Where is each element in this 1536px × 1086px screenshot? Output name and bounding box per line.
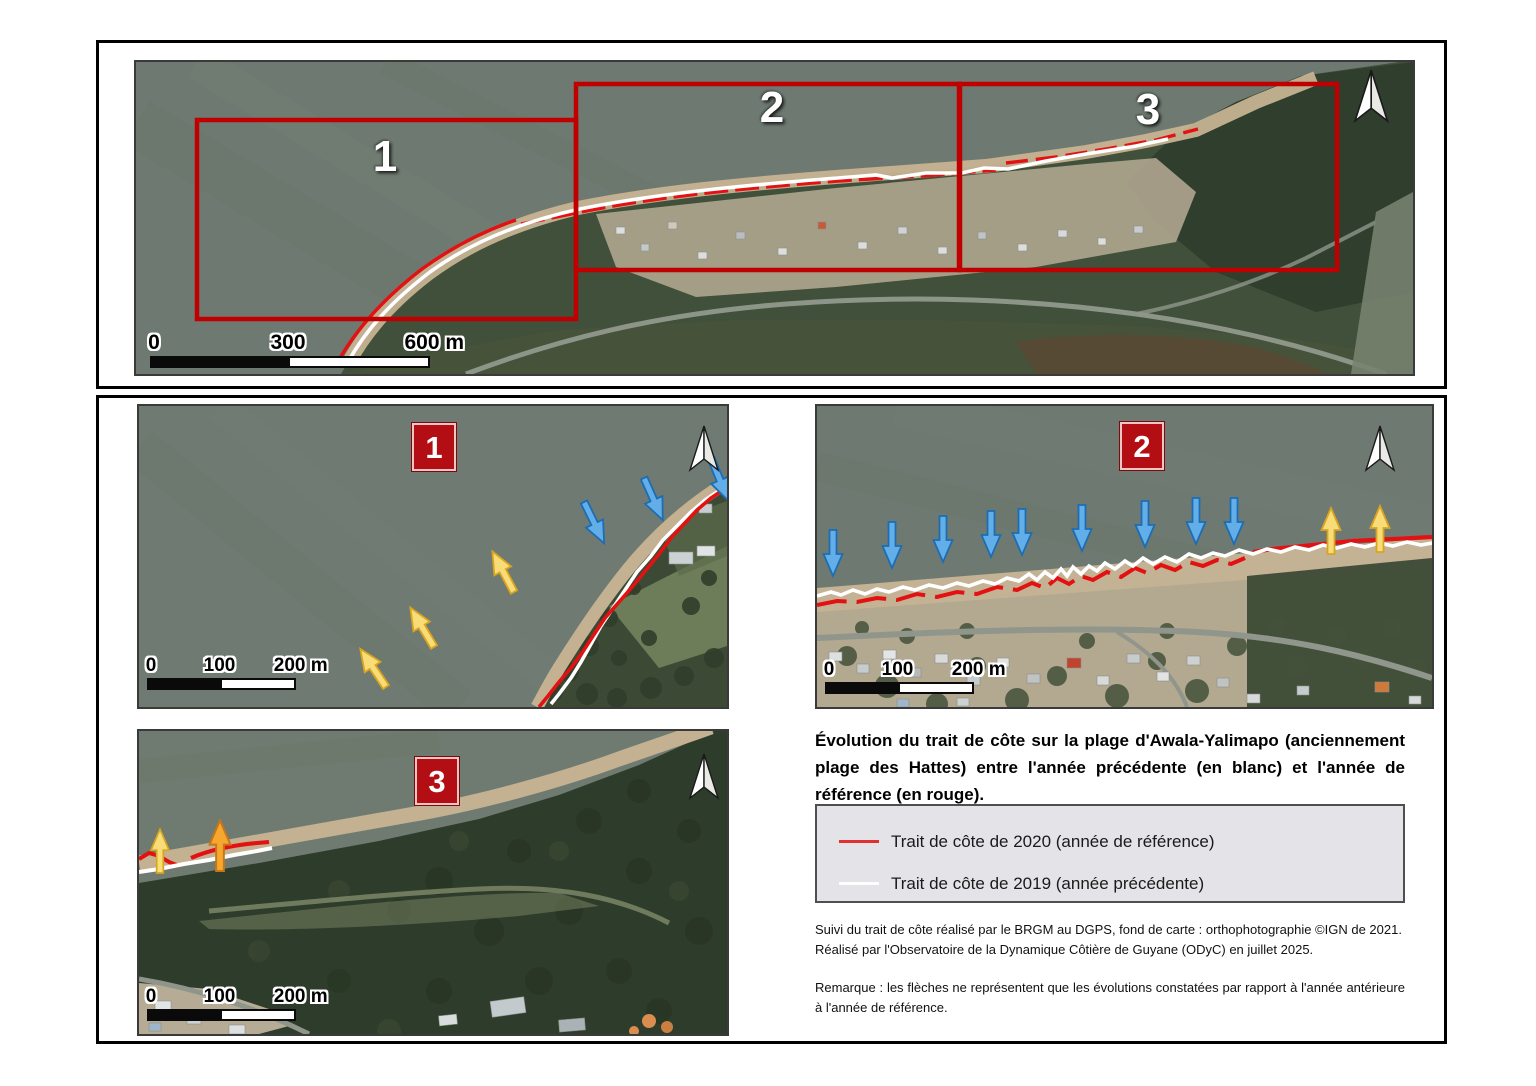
- white-line-swatch: [839, 882, 879, 885]
- scale-label-mid: 100: [204, 987, 236, 1006]
- north-arrow-icon: [688, 752, 720, 800]
- scale-label-mid: 300: [270, 332, 305, 353]
- legend-label: Trait de côte de 2020 (année de référenc…: [891, 830, 1215, 854]
- scale-label-end: 600 m: [404, 332, 464, 353]
- detail-map-3: 3 0 100 200 m: [137, 729, 729, 1036]
- north-arrow-icon: [1352, 68, 1390, 124]
- region-label-2: 2: [760, 86, 784, 130]
- scale-bar: 0 100 200 m: [825, 652, 970, 694]
- red-line-swatch: [839, 840, 879, 843]
- region-label-1: 1: [373, 135, 397, 179]
- north-arrow-icon: [688, 424, 720, 472]
- region-badge-2: 2: [1120, 422, 1164, 470]
- scale-label-end: 200 m: [274, 656, 328, 675]
- legend-box: Trait de côte de 2020 (année de référenc…: [815, 804, 1405, 903]
- north-arrow-icon: [1364, 424, 1396, 472]
- scale-label-0: 0: [824, 660, 835, 679]
- credits-text: Suivi du trait de côte réalisé par le BR…: [815, 920, 1405, 960]
- overview-map: 1 2 3 0 300 600 m: [134, 60, 1415, 376]
- scale-label-end: 200 m: [274, 987, 328, 1006]
- region-badge-3: 3: [415, 757, 459, 805]
- legend-item-2020: Trait de côte de 2020 (année de référenc…: [817, 830, 1403, 854]
- figure-title: Évolution du trait de côte sur la plage …: [815, 727, 1405, 808]
- legend-item-2019: Trait de côte de 2019 (année précédente): [817, 872, 1403, 896]
- scale-bar: 0 100 200 m: [147, 648, 292, 690]
- remark-text: Remarque : les flèches ne représentent q…: [815, 978, 1405, 1018]
- detail-map-2: 2 0 100 200 m: [815, 404, 1434, 709]
- scale-bar: 0 300 600 m: [150, 324, 426, 368]
- scale-label-0: 0: [146, 987, 157, 1006]
- region-badge-1: 1: [412, 423, 456, 471]
- scale-label-mid: 100: [204, 656, 236, 675]
- scale-bar: 0 100 200 m: [147, 979, 292, 1021]
- map-figure-page: 1 2 3 0 300 600 m: [0, 0, 1536, 1086]
- scale-label-0: 0: [146, 656, 157, 675]
- scale-label-end: 200 m: [952, 660, 1006, 679]
- detail-map-1: 1 0 100 200 m: [137, 404, 729, 709]
- scale-label-mid: 100: [882, 660, 914, 679]
- legend-label: Trait de côte de 2019 (année précédente): [891, 872, 1204, 896]
- scale-label-0: 0: [148, 332, 160, 353]
- region-label-3: 3: [1136, 88, 1160, 132]
